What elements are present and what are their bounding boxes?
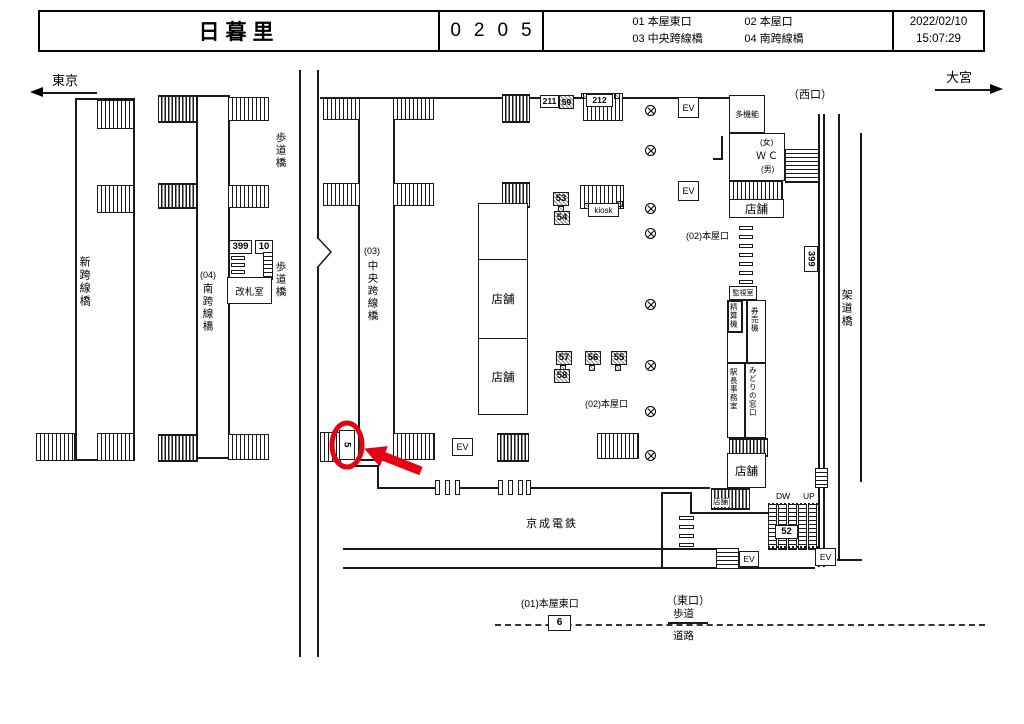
camera-52[interactable]: 52 — [775, 525, 798, 539]
stairs — [815, 468, 828, 488]
camera-mount — [614, 93, 620, 99]
stairs — [36, 433, 75, 461]
time: 15:07:29 — [910, 31, 968, 48]
ticket-gate-mark — [498, 480, 503, 495]
elevator-box: EV — [678, 97, 699, 118]
ticket-gate-mark — [679, 525, 694, 529]
hodokyo-label: 歩道橋 — [274, 132, 286, 170]
wall-line — [377, 487, 435, 489]
ticket-gate-mark — [739, 271, 753, 275]
elevator-box: EV — [739, 551, 759, 567]
ticket-gate-mark — [518, 480, 523, 495]
escalator-down-label: DW — [776, 492, 790, 502]
ticket-gate-mark — [739, 226, 753, 230]
stairs — [393, 433, 435, 460]
ticket-gate-mark — [435, 480, 440, 495]
direction-west-label: 東京 — [52, 74, 78, 89]
bridge-notch — [310, 236, 334, 270]
wall-line — [721, 136, 723, 160]
east-exit-label: （東口） — [666, 595, 710, 608]
camera-mount — [589, 365, 595, 371]
ticket-gate-mark — [231, 256, 245, 260]
station-name-cell: 日暮里 — [40, 12, 440, 50]
wall-line — [746, 300, 748, 363]
wall-line — [196, 95, 198, 458]
elevator-box: EV — [815, 548, 836, 566]
camera-5[interactable]: 5 — [339, 430, 355, 460]
camera-399-track-label: 399 — [806, 251, 816, 267]
chuo-kasenkyo-label: 中央跨線橋 — [366, 260, 378, 323]
stairs — [158, 434, 198, 462]
shop-box: 店舗 — [727, 453, 766, 488]
west-exit-label: （西口） — [788, 89, 832, 102]
stairs — [502, 94, 530, 123]
wall-line — [343, 567, 815, 569]
stairs — [97, 185, 135, 213]
pillar-icon — [645, 145, 656, 156]
pillar-icon — [645, 406, 656, 417]
wall-line — [744, 363, 746, 438]
ticket-gate-mark — [739, 244, 753, 248]
wall-line — [133, 98, 135, 460]
wc-label: ＷＣ — [756, 151, 780, 163]
ticket-office-box: 改札室 — [227, 277, 272, 304]
wall-line — [393, 97, 395, 459]
camera-399-gate[interactable]: 399 — [229, 240, 252, 254]
ticket-gate-mark — [231, 270, 245, 274]
midori-window-label: みどりの窓口 — [748, 366, 756, 417]
wall-line — [317, 267, 319, 657]
camera-211[interactable]: 211 — [540, 95, 559, 108]
wall-line — [339, 465, 377, 467]
camera-54[interactable]: 54 — [554, 211, 570, 225]
stairs — [323, 97, 360, 120]
ticket-gate-mark — [739, 280, 753, 284]
camera-code-cell: 0205 — [440, 12, 544, 50]
stairs — [393, 97, 434, 120]
camera-list-cell: 01 本屋東口02 本屋口 03 中央跨線橋04 南跨線橋 — [544, 12, 894, 50]
camera-399-track[interactable]: 399 — [804, 246, 818, 272]
wall-line — [690, 492, 692, 512]
wall-line — [75, 98, 77, 460]
honya-higashi-label: (01)本屋東口 — [521, 599, 579, 611]
ticket-gate-mark — [508, 480, 513, 495]
camera-group-02: 02 本屋口 — [744, 16, 792, 28]
stationmaster-office-label: 駅長事務室 — [729, 368, 737, 411]
escalator — [798, 504, 807, 550]
honyaguchi-label: (02)本屋口 — [686, 231, 729, 241]
wall-line — [768, 546, 818, 548]
wall-line — [377, 465, 379, 487]
stairs — [158, 183, 198, 209]
camera-58[interactable]: 58 — [554, 369, 570, 383]
ticket-gate-mark — [231, 263, 245, 267]
camera-56[interactable]: 56 — [585, 351, 601, 365]
wc-male-label: (男) — [761, 165, 774, 174]
wall-line — [196, 457, 228, 459]
wall-line — [459, 487, 498, 489]
camera-list: 01 本屋東口02 本屋口 03 中央跨線橋04 南跨線橋 — [632, 14, 803, 48]
station-name: 日暮里 — [199, 16, 280, 46]
wc-female-label: (女) — [760, 138, 773, 147]
datetime: 2022/02/10 15:07:29 — [910, 14, 968, 49]
room-box — [478, 203, 528, 260]
shin-kasenkyo-label: 新跨線橋 — [78, 256, 90, 308]
fare-adjust-label: 精算機 — [729, 303, 737, 329]
minami-kasenkyo-label: 南跨線橋 — [201, 283, 213, 333]
ticket-gate-mark — [445, 480, 450, 495]
keisei-label: 京成電鉄 — [526, 518, 578, 531]
stairs — [97, 100, 135, 129]
hodokyo-label: 歩道橋 — [274, 261, 286, 299]
stairs — [729, 181, 783, 201]
pillar-icon — [645, 203, 656, 214]
station-map-screen: 日暮里 0205 01 本屋東口02 本屋口 03 中央跨線橋04 南跨線橋 2… — [0, 0, 1024, 724]
escalator-up-label: UP — [803, 492, 815, 502]
date: 2022/02/10 — [910, 14, 968, 31]
header-bar: 日暮里 0205 01 本屋東口02 本屋口 03 中央跨線橋04 南跨線橋 2… — [38, 10, 985, 52]
stairs — [97, 433, 135, 461]
wall-line — [837, 559, 862, 561]
ticket-gate-mark — [526, 480, 531, 495]
ticket-machine-label: 券売機 — [750, 307, 758, 333]
west-arrow-icon — [30, 87, 43, 97]
wall-line — [823, 114, 825, 567]
wall-line — [299, 70, 301, 657]
ticket-gate-mark — [739, 253, 753, 257]
camera-5-label: 5 — [342, 442, 352, 447]
surveillance-room-box: 監視室 — [729, 286, 757, 300]
stairs — [263, 252, 273, 280]
escalator — [808, 504, 817, 550]
stairs — [785, 149, 820, 183]
ticket-gate-mark — [679, 534, 694, 538]
stairs — [228, 97, 269, 121]
wall-line — [818, 114, 820, 567]
east-arrow-icon — [990, 84, 1003, 94]
road-label: 道路 — [671, 630, 696, 642]
camera-55[interactable]: 55 — [611, 351, 627, 365]
wall-line — [668, 622, 708, 624]
pillar-icon — [645, 105, 656, 116]
stairs — [597, 433, 639, 459]
shop-box: 店舗 — [478, 259, 528, 339]
wall-line — [358, 459, 393, 461]
wall-line — [661, 492, 663, 567]
honyaguchi-label: (02)本屋口 — [585, 399, 628, 409]
wall-line — [317, 70, 319, 239]
camera-59[interactable]: 59 — [559, 95, 574, 109]
pillar-icon — [645, 450, 656, 461]
camera-212[interactable]: 212 — [586, 94, 613, 107]
camera-group-04: 04 南跨線橋 — [744, 33, 803, 45]
camera-57[interactable]: 57 — [556, 351, 572, 365]
multifunction-toilet-box: 多機能 — [729, 95, 765, 133]
stairs — [228, 185, 269, 208]
ticket-gate-mark — [739, 235, 753, 239]
stairs — [320, 432, 341, 462]
shop-box: 店舗 — [729, 199, 784, 218]
wall-line — [860, 133, 862, 482]
ticket-gate-mark — [739, 262, 753, 266]
kiosk-box: kiosk — [588, 203, 619, 217]
pillar-icon — [645, 299, 656, 310]
elevator-box: EV — [678, 181, 699, 201]
camera-group-03: 03 中央跨線橋 — [632, 31, 744, 48]
shop-box: 店舗 — [478, 338, 528, 415]
wall-line — [529, 487, 710, 489]
camera-group-01: 01 本屋東口 — [632, 14, 744, 31]
wall-line — [196, 95, 228, 97]
minami-kasenkyo-number: (04) — [200, 270, 216, 280]
wall-line — [661, 492, 690, 494]
chuo-kasenkyo-number: (03) — [364, 246, 380, 256]
camera-mount — [615, 365, 621, 371]
direction-east-label: 大宮 — [946, 71, 972, 86]
kadokyo-label: 架道橋 — [840, 289, 852, 328]
wall-line — [358, 97, 360, 459]
stairs — [497, 433, 529, 462]
camera-code: 0205 — [437, 20, 544, 42]
west-arrow-line — [42, 92, 97, 94]
ticket-gate-mark — [679, 543, 694, 547]
wall-line — [713, 158, 721, 160]
stairs — [716, 548, 739, 569]
stairs — [228, 434, 269, 460]
ticket-gate-mark — [455, 480, 460, 495]
datetime-cell: 2022/02/10 15:07:29 — [894, 12, 983, 50]
elevator-box: EV — [452, 438, 473, 456]
sidewalk-label: 歩道 — [671, 608, 696, 620]
east-arrow-line — [935, 89, 990, 91]
pillar-icon — [645, 228, 656, 239]
camera-53[interactable]: 53 — [553, 192, 569, 206]
shop-small-label: 店舗 — [712, 498, 729, 507]
stairs — [323, 183, 360, 206]
stairs — [158, 95, 198, 123]
wall-line — [690, 512, 768, 514]
pillar-icon — [645, 360, 656, 371]
stairs — [393, 183, 434, 206]
camera-6[interactable]: 6 — [548, 615, 571, 631]
ticket-gate-mark — [679, 516, 694, 520]
wall-line — [838, 114, 840, 560]
